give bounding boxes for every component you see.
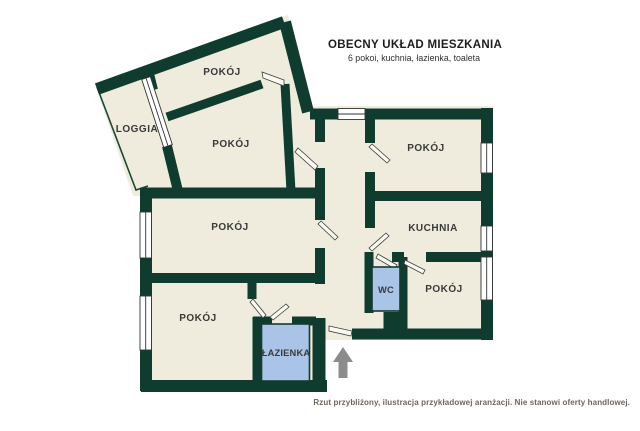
room-label-wc: WC [378,285,394,295]
window-left-1 [140,212,152,258]
room-label-loggia: LOGGIA [116,124,158,135]
disclaimer-text: Rzut przybliżony, ilustracja przykładowe… [313,398,630,407]
room-label-pokoj-top-right: POKÓJ [407,141,445,154]
room-label-kuchnia: KUCHNIA [408,223,458,234]
wall-pokoj2-right [285,84,291,191]
room-label-lazienka: ŁAZIENKA [262,348,311,358]
floor-plan: POKÓJ LOGGIA POKÓJ POKÓJ POKÓJ KUCHNIA W… [0,0,640,426]
floor-plan-svg: POKÓJ LOGGIA POKÓJ POKÓJ POKÓJ KUCHNIA W… [0,0,640,426]
page-title: OBECNY UKŁAD MIESZKANIA [328,39,500,51]
window-right-1 [481,143,493,173]
window-corridor-top [338,109,365,120]
plan-header: OBECNY UKŁAD MIESZKANIA 6 pokoi, kuchnia… [328,39,500,63]
window-left-2 [140,296,152,350]
room-label-pokoj-top-rotated: POKÓJ [203,65,241,78]
page-subtitle: 6 pokoi, kuchnia, łazienka, toaleta [328,53,500,63]
room-label-pokoj-bottom-left: POKÓJ [179,311,217,324]
room-label-pokoj-bottom-right: POKÓJ [425,282,463,295]
window-right-3 [481,257,493,300]
room-label-pokoj-middle-left: POKÓJ [211,220,249,233]
window-right-2 [481,226,493,251]
room-label-pokoj-second-rotated: POKÓJ [212,137,250,150]
entrance-arrow-icon [333,347,353,378]
